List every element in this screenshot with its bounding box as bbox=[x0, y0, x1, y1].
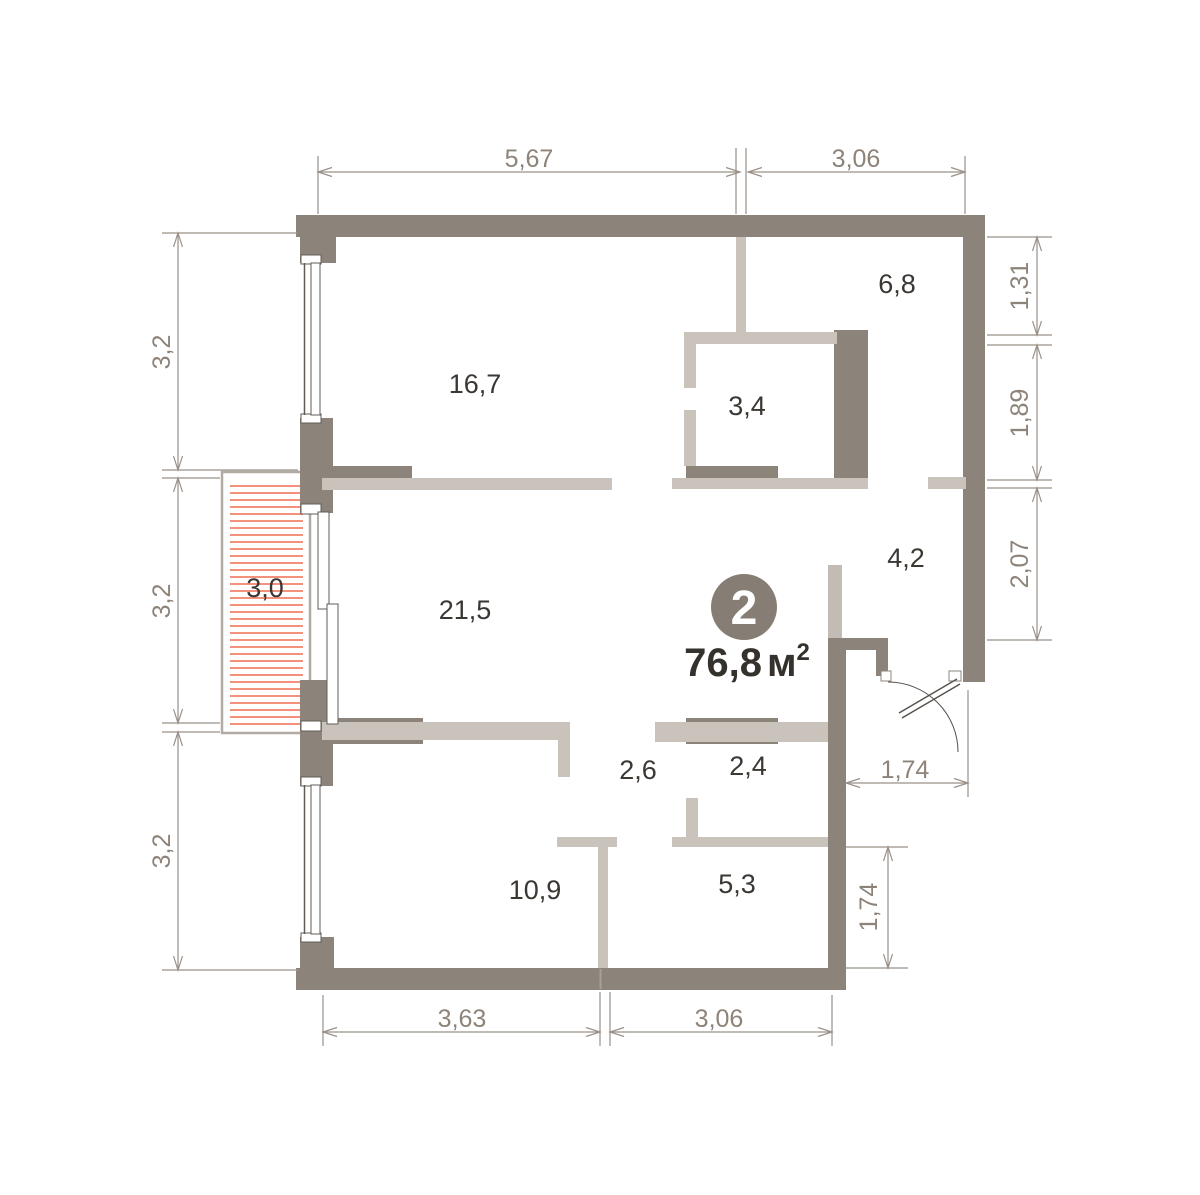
partition-segment bbox=[684, 332, 837, 344]
partition-segment bbox=[322, 478, 612, 490]
wall-segment bbox=[300, 418, 333, 513]
door-leaf bbox=[902, 684, 960, 718]
room-area-label: 5,3 bbox=[718, 869, 756, 899]
partition-segment bbox=[558, 737, 570, 777]
room-area-label: 2,4 bbox=[729, 751, 767, 781]
door-leaf bbox=[899, 679, 957, 713]
wall-segment bbox=[296, 968, 846, 990]
entrance-door bbox=[881, 671, 961, 752]
room-area-label: 6,8 bbox=[878, 269, 916, 299]
unit-total-area: 76,8м2 bbox=[684, 639, 810, 685]
window bbox=[301, 255, 321, 423]
area-superscript: 2 bbox=[797, 639, 810, 666]
floor-plan-canvas: 5,673,063,23,23,21,311,892,071,741,743,6… bbox=[0, 0, 1200, 1195]
partition-segment bbox=[684, 344, 696, 388]
dimension-label: 3,2 bbox=[148, 335, 176, 370]
room-area-label: 21,5 bbox=[439, 595, 492, 625]
dimension-label: 1,74 bbox=[855, 883, 883, 932]
wardrobes bbox=[322, 466, 778, 744]
room-area-label: 3,4 bbox=[728, 391, 766, 421]
door-swing-arc bbox=[888, 682, 958, 752]
partition-segment bbox=[672, 478, 868, 489]
dimension-label: 3,63 bbox=[438, 1005, 487, 1033]
room-area-label: 2,6 bbox=[619, 755, 657, 785]
dimension-label: 3,2 bbox=[148, 584, 176, 619]
dimension-label: 2,07 bbox=[1006, 540, 1034, 589]
area-unit: м bbox=[767, 641, 797, 685]
window bbox=[301, 777, 321, 942]
partition-segment bbox=[686, 798, 698, 838]
partition-segment bbox=[322, 722, 570, 740]
wall-segment bbox=[828, 638, 888, 650]
unit-badge: 2 76,8м2 bbox=[684, 574, 810, 685]
room-labels-layer: 16,76,83,44,221,53,02,62,410,95,3 bbox=[246, 269, 925, 905]
dimension-label: 3,06 bbox=[695, 1005, 744, 1033]
dimension-label: 5,67 bbox=[505, 145, 554, 173]
wall-segment bbox=[300, 937, 334, 990]
partition-segment bbox=[828, 565, 842, 638]
dimension-label: 1,74 bbox=[881, 756, 930, 784]
wall-segment bbox=[296, 215, 985, 237]
balcony-hatch bbox=[230, 486, 303, 724]
door-jamb bbox=[881, 671, 891, 681]
unit-number: 2 bbox=[731, 582, 758, 635]
partitions bbox=[322, 237, 966, 968]
area-value: 76,8 bbox=[684, 641, 762, 685]
room-area-label: 3,0 bbox=[246, 573, 284, 603]
floor-plan: 5,673,063,23,23,21,311,892,071,741,743,6… bbox=[0, 0, 1200, 1195]
duct-shaft bbox=[834, 330, 868, 488]
wall-segment bbox=[963, 215, 985, 682]
partition-segment bbox=[655, 722, 828, 742]
wall-segment bbox=[828, 650, 846, 990]
partition-segment bbox=[736, 237, 746, 333]
partition-segment bbox=[672, 837, 828, 847]
partition-segment bbox=[928, 477, 966, 489]
dimension-label: 1,31 bbox=[1006, 262, 1034, 311]
dimension-label: 1,89 bbox=[1006, 389, 1034, 438]
room-area-label: 10,9 bbox=[509, 875, 562, 905]
room-area-label: 4,2 bbox=[887, 543, 925, 573]
room-area-label: 16,7 bbox=[449, 369, 502, 399]
partition-segment bbox=[557, 837, 617, 847]
partition-segment bbox=[684, 410, 696, 466]
dimension-label: 3,2 bbox=[148, 834, 176, 869]
partition-segment bbox=[598, 847, 608, 968]
outer-walls bbox=[296, 215, 985, 990]
dimension-label: 3,06 bbox=[832, 145, 881, 173]
